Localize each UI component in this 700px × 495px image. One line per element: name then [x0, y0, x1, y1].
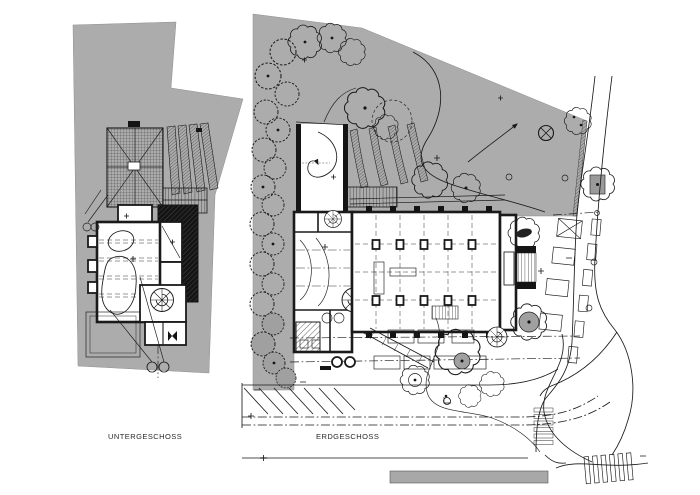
untergeschoss-label: UNTERGESCHOSS [108, 432, 182, 441]
scale-bar [390, 471, 548, 483]
church-building [294, 195, 536, 368]
accessible-parking-icon [444, 395, 452, 405]
crosswalk [584, 453, 633, 484]
untergeschoss-plan [73, 22, 243, 378]
reference-tick [260, 455, 267, 461]
courtyard [296, 122, 348, 212]
manhole [345, 357, 355, 367]
diagonal-parking-lines [244, 388, 355, 414]
site-plan-drawing [0, 0, 700, 495]
spiral-stair-icon [325, 211, 342, 228]
erdgeschoss-plan [242, 14, 648, 484]
erdgeschoss-label: ERDGESCHOSS [316, 432, 379, 441]
spiral-stair-icon [487, 327, 507, 347]
diagonal-walkway [362, 328, 434, 368]
sheet: UNTERGESCHOSS ERDGESCHOSS [0, 0, 700, 495]
manhole [332, 357, 342, 367]
tree-planter [581, 167, 615, 201]
spiral-stair-icon [151, 289, 174, 312]
